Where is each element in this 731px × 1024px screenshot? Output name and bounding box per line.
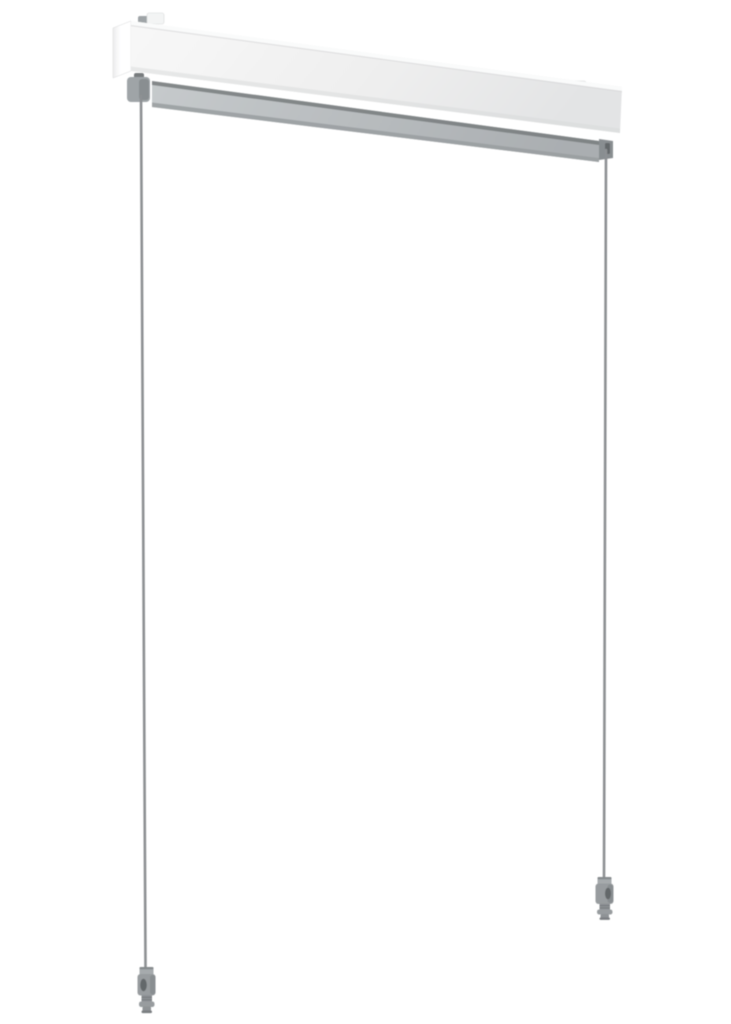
- tensioner-left-neck: [142, 995, 153, 1002]
- tensioner-left-collar-edge: [140, 967, 154, 969]
- tensioner-left-tip-end: [142, 1011, 153, 1014]
- cable-guide-left: [127, 73, 150, 102]
- cable-tensioner-right: [596, 877, 614, 920]
- tensioner-left-flange: [139, 1002, 155, 1008]
- tensioner-left-body-shade: [150, 975, 156, 995]
- tension-cable-left: [141, 96, 146, 967]
- tension-cable-right: [604, 150, 606, 878]
- tensioner-right-tip-end: [600, 918, 611, 920]
- cable-tensioner-left: [138, 967, 156, 1013]
- cassette-side-face: [113, 21, 131, 78]
- tensioner-right-collar-edge: [598, 877, 612, 879]
- tensioner-right-slot: [605, 888, 611, 900]
- roller-blind-illustration: [0, 0, 731, 1024]
- tensioner-right-neck: [600, 904, 611, 911]
- tensioner-left-slot: [140, 979, 147, 991]
- product-photo-roller-blind: [0, 0, 731, 1024]
- photo-content: [113, 13, 622, 1013]
- tensioner-right-flange: [597, 910, 613, 915]
- mounting-bracket-left-cover: [147, 13, 164, 24]
